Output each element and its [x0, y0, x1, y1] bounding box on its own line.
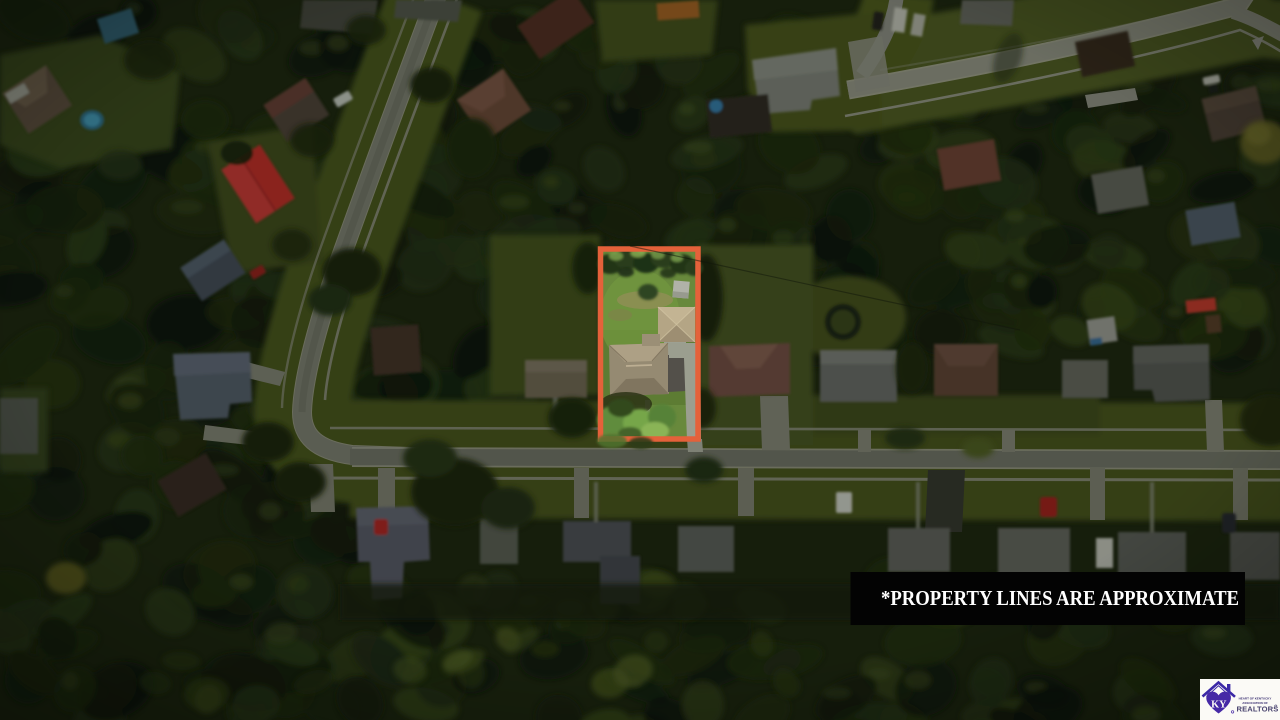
svg-text:REALTORS: REALTORS: [1237, 705, 1279, 714]
svg-text:*PROPERTY LINES ARE APPROXIMAT: *PROPERTY LINES ARE APPROXIMATE: [881, 586, 1239, 610]
svg-text:KY: KY: [1211, 700, 1227, 711]
